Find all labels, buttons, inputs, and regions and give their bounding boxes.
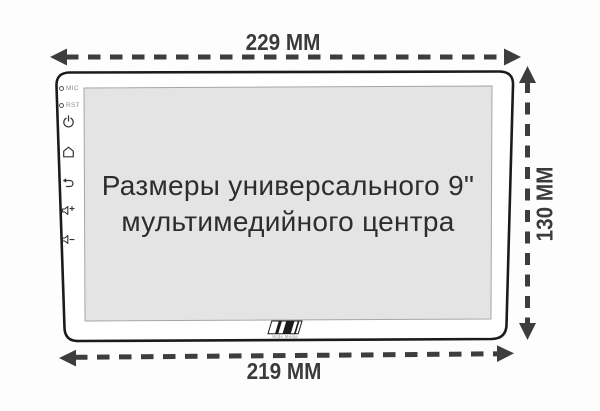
brand-logo-icon xyxy=(267,320,303,335)
rst-label: RST xyxy=(66,102,80,109)
rst-label-row: RST xyxy=(59,102,80,109)
arrowhead-up-icon xyxy=(519,66,536,83)
arrowhead-right-icon xyxy=(497,345,514,362)
home-icon xyxy=(62,146,75,158)
bottom-width-label: 219 ММ xyxy=(247,358,322,385)
mic-label: MIC xyxy=(66,85,79,92)
caption-line-2: мультимедийного центра xyxy=(121,205,454,239)
arrowhead-left-icon xyxy=(59,350,76,367)
back-icon xyxy=(62,177,74,188)
reset-hole-icon xyxy=(59,103,64,108)
top-width-label: 229 ММ xyxy=(246,29,321,56)
side-height-label: 130 ММ xyxy=(532,167,559,242)
power-icon xyxy=(62,115,75,128)
caption-line-1: Размеры универсального 9" xyxy=(102,169,474,203)
arrowhead-down-icon xyxy=(519,323,536,340)
screen-caption: Размеры универсального 9" мультимедийног… xyxy=(84,88,492,319)
mic-hole-icon xyxy=(59,86,64,91)
arrowhead-right-icon xyxy=(504,49,521,66)
volume-up-icon xyxy=(61,204,76,217)
volume-down-icon xyxy=(61,233,76,246)
arrowhead-left-icon xyxy=(50,49,67,66)
mic-label-row: MIC xyxy=(59,85,79,92)
brand-name: Wide Media xyxy=(267,334,303,339)
dimension-diagram: 229 ММ 219 ММ 130 ММ Размеры универсальн… xyxy=(0,0,600,411)
